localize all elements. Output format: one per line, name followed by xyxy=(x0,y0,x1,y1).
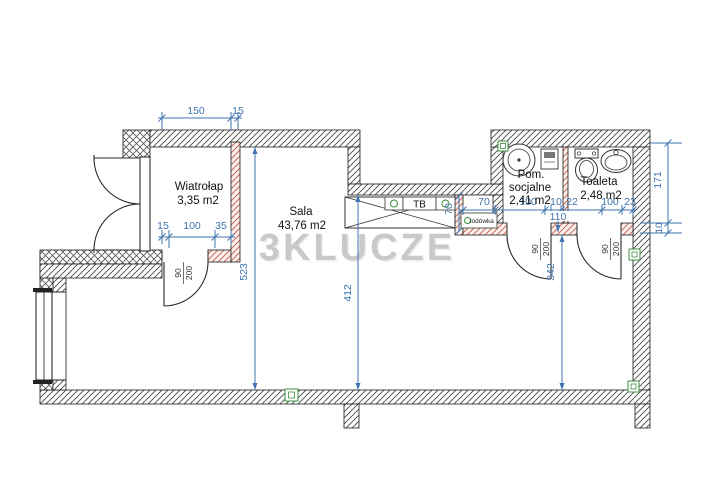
dim-label-110: 110 xyxy=(550,211,567,223)
door-height: 200 xyxy=(611,242,621,256)
dim-label-10-right: 10 xyxy=(654,223,665,234)
room-name-pom-1: Pom. xyxy=(518,169,545,181)
entrance-double-door xyxy=(94,155,150,253)
door-label-pom: 90 200 xyxy=(530,238,551,260)
tb-label: TB xyxy=(413,200,426,211)
floor-plan-page: 3KLUCZE 3KLUCZE xyxy=(0,0,701,500)
floor-plan-drawing: 3KLUCZE 3KLUCZE xyxy=(0,0,701,500)
partition-south-c xyxy=(621,223,633,235)
dim-label-35: 35 xyxy=(215,220,227,232)
dim-label-70-counter: 70 xyxy=(443,203,455,215)
wall-left-inner-lower xyxy=(53,380,66,390)
wall-niche-left xyxy=(348,147,360,184)
room-area-sala: 43,76 m2 xyxy=(278,220,326,232)
wall-vestibule-south-outer xyxy=(40,250,162,264)
lamp-symbol xyxy=(391,200,398,207)
wall-pier-bottom-center xyxy=(344,404,359,428)
dim-vestibule xyxy=(158,230,235,248)
dim-label-70-fridge: 70 xyxy=(478,196,490,208)
door-label-vestibule: 90 200 xyxy=(173,262,194,284)
wall-right xyxy=(633,147,650,390)
dim-label-523: 523 xyxy=(238,263,250,281)
wall-bottom xyxy=(40,390,650,404)
wall-top-left xyxy=(150,130,360,147)
dim-label-10: 10 xyxy=(550,196,562,208)
outlet-symbol xyxy=(498,141,508,151)
dim-523 xyxy=(253,147,258,390)
door-width: 90 xyxy=(600,244,610,254)
boiler-box xyxy=(541,149,558,169)
wall-face-lines xyxy=(52,292,66,380)
room-name-sala: Sala xyxy=(289,206,313,218)
room-name-pom-2: socjalne xyxy=(509,182,551,194)
wall-pillar-entrance xyxy=(123,130,150,158)
watermark-text: 3KLUCZE xyxy=(259,227,455,269)
door-height: 200 xyxy=(541,242,551,256)
partition-vestibule-stub xyxy=(208,250,231,262)
window-cap-top xyxy=(33,288,52,292)
outlet-symbol xyxy=(285,389,298,401)
door-width: 90 xyxy=(530,244,540,254)
room-name-wiatrolap: Wiatrołap xyxy=(175,181,224,193)
dim-label-412: 412 xyxy=(342,284,354,302)
dim-label-342: 342 xyxy=(545,263,557,281)
door-label-toaleta: 90 200 xyxy=(600,238,621,260)
room-area-wiatrolap: 3,35 m2 xyxy=(177,195,219,207)
door-height: 200 xyxy=(184,266,194,280)
dim-label-15: 15 xyxy=(157,220,169,232)
room-area-pom: 2,41 m2 xyxy=(509,195,551,207)
tb-counter xyxy=(345,197,455,228)
dim-label-15-top: 15 xyxy=(232,105,244,117)
partition-south-b xyxy=(551,223,577,235)
room-area-toaleta: 2,48 m2 xyxy=(580,190,622,202)
fridge-label: lodówka xyxy=(470,218,494,225)
wall-niche-right xyxy=(491,147,503,184)
window-cap-bottom xyxy=(33,380,52,384)
window xyxy=(33,288,52,384)
walls xyxy=(40,130,650,428)
dim-label-22: 22 xyxy=(566,196,578,208)
dim-342 xyxy=(560,235,565,390)
wall-vestibule-south-inner xyxy=(40,264,162,278)
door-width: 90 xyxy=(173,268,183,278)
outlet-symbol xyxy=(629,249,640,260)
dim-label-100: 100 xyxy=(183,220,201,232)
partition-vestibule-sala xyxy=(231,142,240,262)
dim-label-171: 171 xyxy=(652,171,664,189)
oval-sink xyxy=(601,150,631,173)
dim-label-23: 23 xyxy=(624,196,636,208)
wall-pier-bottom-right xyxy=(635,404,650,428)
dim-label-150: 150 xyxy=(187,105,205,117)
wall-niche-back xyxy=(348,184,503,195)
outlet-symbol xyxy=(628,381,639,392)
room-name-toaleta: Toaleta xyxy=(580,176,618,188)
